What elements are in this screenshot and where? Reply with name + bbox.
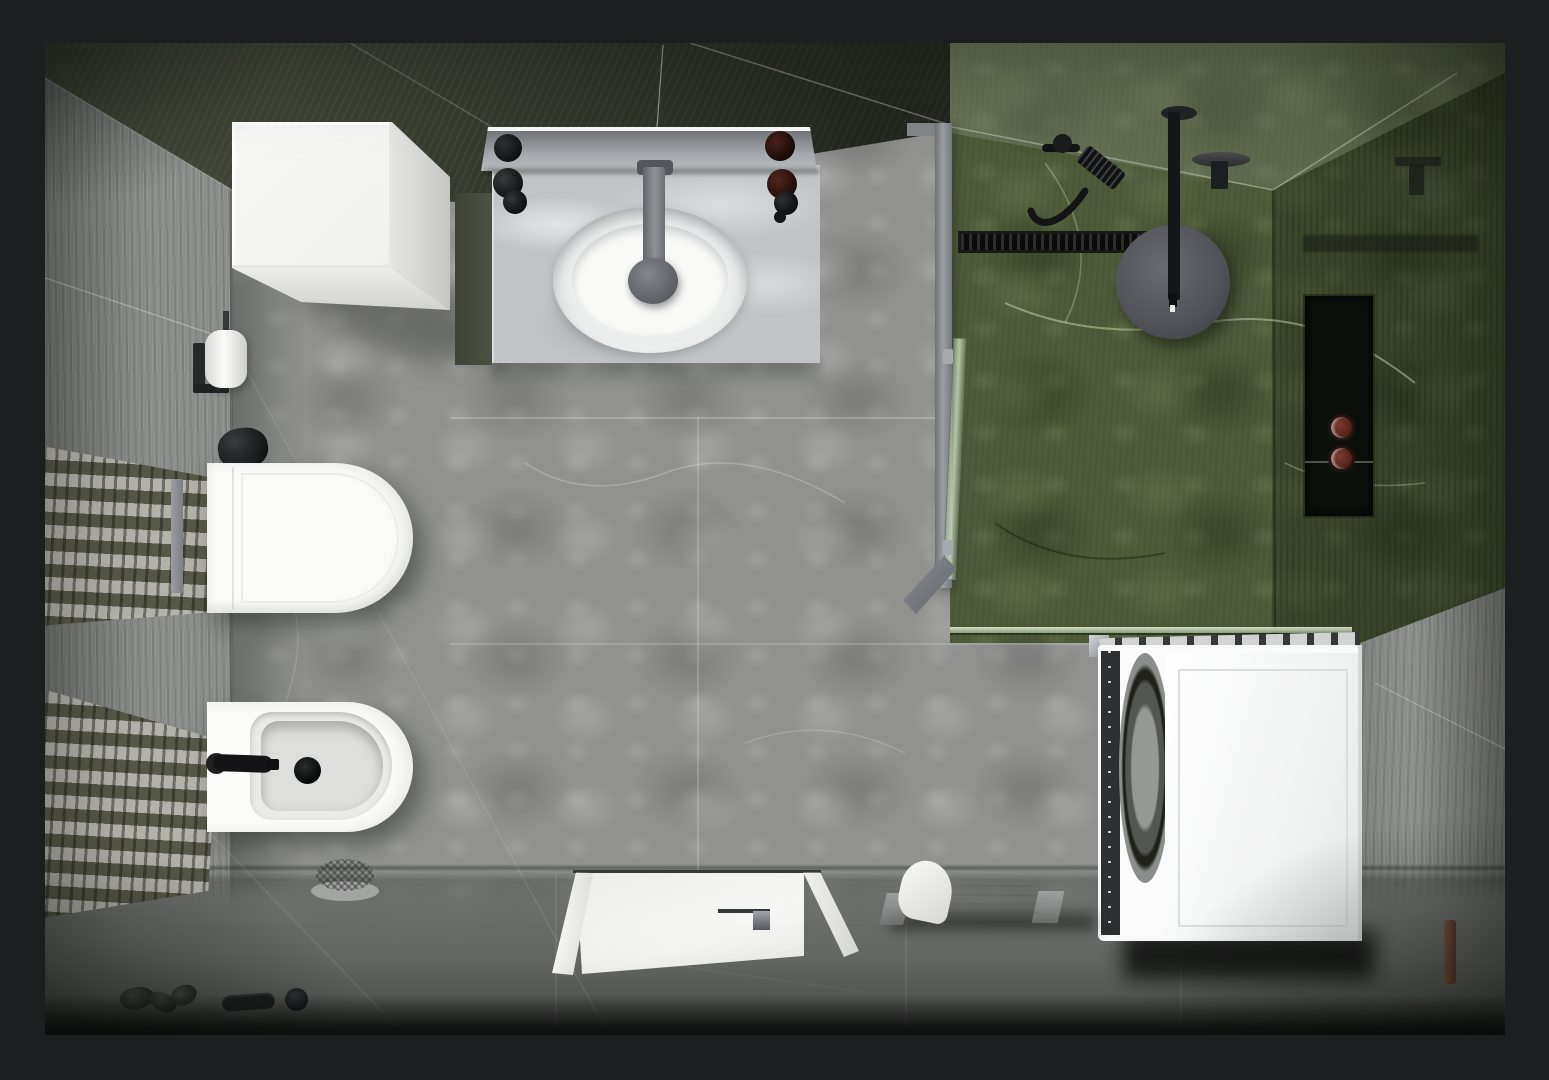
bidet-basin-inner (261, 721, 383, 811)
rendered-photo: { "image": { "kind": "photorealistic 3D … (0, 0, 1549, 1080)
toilet-lid-seam (232, 467, 234, 609)
towel-rail-on-mosaic (171, 479, 183, 593)
shower-niche (1305, 296, 1373, 516)
door-hinge (943, 540, 953, 555)
tray-top-seam (573, 870, 821, 873)
floor-grout-line (697, 417, 699, 871)
vanity-under-shadow (492, 359, 822, 387)
shower-arm (1168, 112, 1180, 300)
mosaic-band-upper (45, 446, 222, 635)
bathroom-room (45, 43, 1505, 1035)
toiletry-bottle (774, 211, 786, 223)
toilet-paper-roll (205, 330, 247, 388)
wooden-peg (1444, 920, 1456, 984)
washer-drum-door (1119, 653, 1171, 883)
mixer-knob (1053, 134, 1072, 153)
toilet-lid-outline (241, 473, 399, 603)
washer-front-inset (1178, 669, 1348, 927)
bottom-shadow-fade (45, 995, 1505, 1035)
bidet-drain (294, 757, 321, 784)
niche-bracket (1327, 508, 1345, 517)
storage-cube (232, 122, 392, 268)
toiletry-bottle (503, 190, 527, 214)
linear-drain (958, 231, 1148, 253)
glass-screen-wall-bracket (907, 123, 937, 136)
shower-arm-nozzle (1170, 305, 1175, 312)
paper-holder-bracket (193, 343, 205, 389)
tray-drain-fitting (753, 911, 770, 930)
basin-faucet-base (628, 258, 678, 304)
bidet-faucet-tip (267, 759, 279, 770)
toiletry-bottle-reflection (765, 131, 795, 161)
bidet-faucet (213, 754, 274, 773)
drain-reflection (1303, 235, 1478, 252)
soap-dish (316, 859, 374, 891)
niche-bracket (1327, 293, 1345, 301)
shower-wall-stub (1211, 161, 1228, 189)
washer-control-strip (1101, 651, 1120, 935)
washer-edge-highlight (1358, 645, 1362, 941)
toiletry-bottle-reflection (494, 134, 522, 162)
niche-jar (1328, 414, 1355, 441)
door-hinge (943, 349, 953, 364)
photo-frame (0, 0, 1549, 1080)
spout-reflection (1409, 164, 1424, 195)
vanity-side-shadow (455, 193, 492, 365)
niche-jar (1328, 445, 1355, 472)
floor-grout-line (450, 417, 950, 419)
floor-grout-line (450, 643, 1095, 645)
